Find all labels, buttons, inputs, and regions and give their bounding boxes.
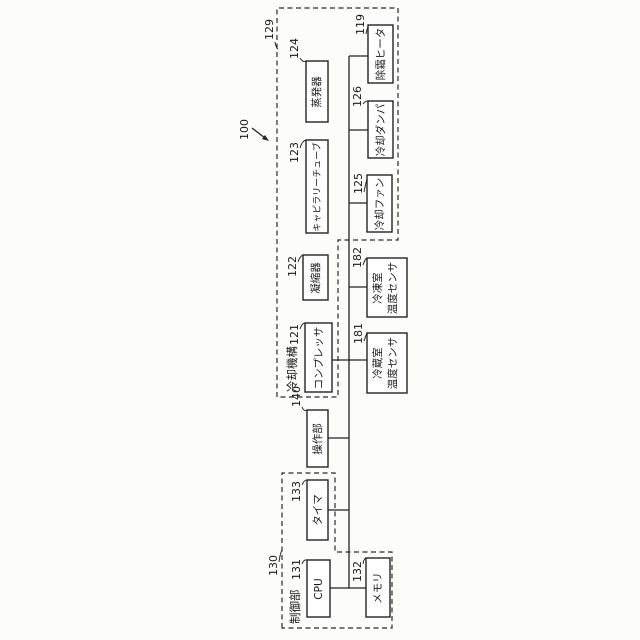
defrost-heater-label: 除霜ヒータ — [374, 28, 387, 81]
evaporator-leader — [300, 58, 306, 62]
freezer-temp-sensor-label-line1: 冷凍室 — [371, 272, 384, 304]
compressor-leader — [300, 323, 305, 329]
cpu-ref: 131 — [290, 559, 303, 580]
connector-lines — [328, 56, 368, 588]
timer-label: タイマ — [312, 494, 324, 526]
compressor-ref: 121 — [288, 324, 301, 345]
cooling-mechanism-group-label: 冷却機構 — [285, 346, 299, 392]
operation-ref: 140 — [290, 386, 303, 407]
timer-leader — [302, 480, 307, 485]
condenser-ref: 122 — [286, 256, 299, 277]
timer-ref: 133 — [290, 481, 303, 502]
cpu-label: CPU — [313, 578, 325, 599]
fridge-temp-sensor-label-line2: 温度センサ — [386, 337, 399, 390]
condenser-label: 凝縮器 — [309, 262, 322, 294]
overall-ref-label: 100 — [238, 119, 251, 140]
compressor-label: コンプレッサ — [313, 327, 325, 390]
capillary-tube-label: キャピラリーチューブ — [311, 142, 323, 231]
freezer-temp-sensor-ref: 182 — [351, 247, 364, 268]
fridge-temp-sensor-label-line1: 冷蔵室 — [371, 347, 384, 379]
operation-leader — [302, 407, 307, 411]
evaporator-label: 蒸発器 — [310, 76, 323, 108]
cooling-fan-label: 冷却ファン — [373, 178, 386, 231]
cooling-damper-ref: 126 — [351, 86, 364, 107]
control-unit-group-label: 制御部 — [288, 590, 302, 625]
memory-ref: 132 — [351, 561, 364, 582]
control-unit-ref: 130 — [267, 555, 280, 576]
freezer-temp-sensor-label-line2: 温度センサ — [386, 262, 399, 315]
memory-label: メモリ — [372, 572, 384, 604]
evaporator-ref: 124 — [288, 38, 301, 59]
defrost-heater-ref: 119 — [354, 14, 367, 35]
fridge-temp-sensor-ref: 181 — [352, 323, 365, 344]
operation-label: 操作部 — [311, 423, 324, 455]
cooling-mechanism-ref: 129 — [263, 19, 276, 40]
capillary-tube-ref: 123 — [288, 142, 301, 163]
patent-block-diagram: 100 冷却機構 129 制御部 130 CPU 131 — [0, 0, 640, 640]
cooling-damper-label: 冷却ダンパ — [374, 103, 387, 156]
cooling-fan-ref: 125 — [352, 173, 365, 194]
overall-ref-arrow-line — [252, 128, 265, 138]
